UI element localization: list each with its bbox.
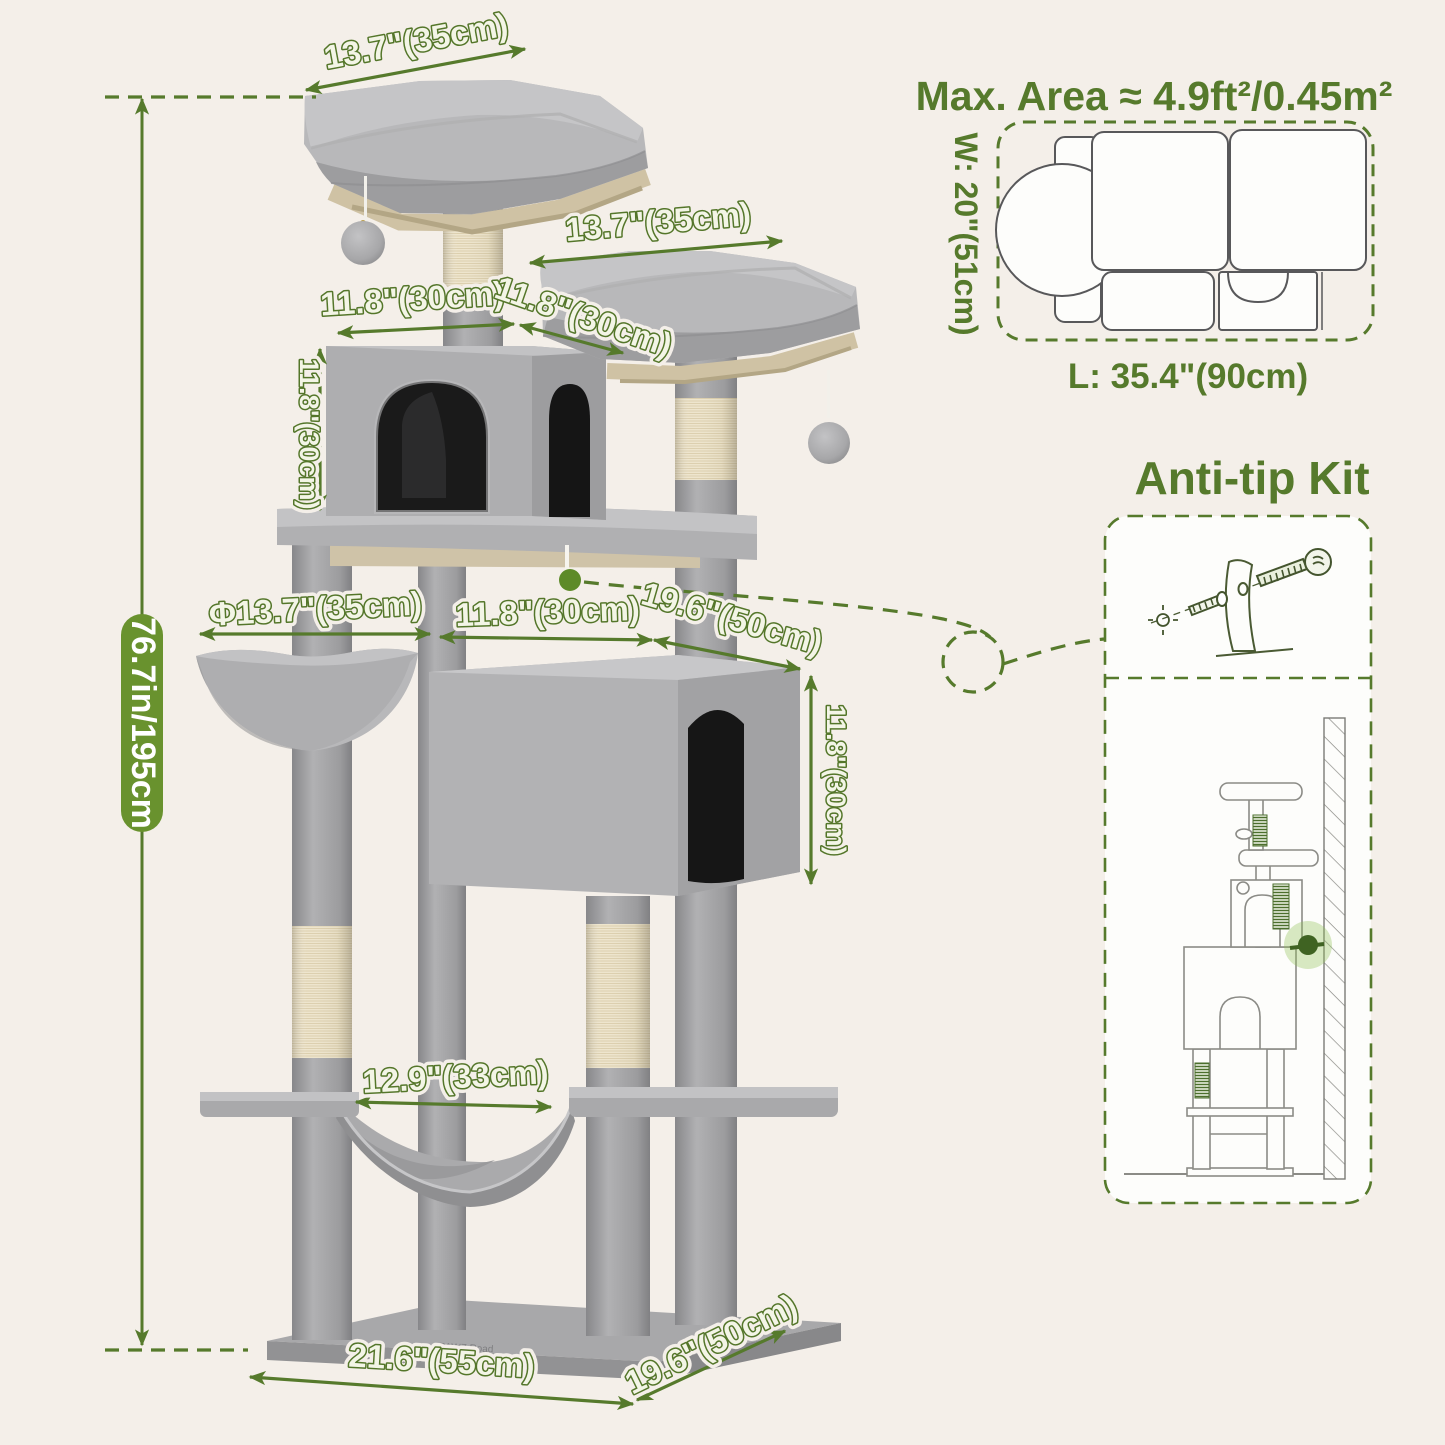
svg-text:W: 20"(51cm): W: 20"(51cm) — [948, 132, 984, 335]
svg-text:11.8"(30cm): 11.8"(30cm) — [294, 359, 324, 510]
svg-text:11.8"(30cm): 11.8"(30cm) — [455, 590, 641, 633]
svg-text:Max. Area ≈ 4.9ft²/0.45m²: Max. Area ≈ 4.9ft²/0.45m² — [916, 73, 1393, 119]
svg-text:Anti-tip Kit: Anti-tip Kit — [1134, 452, 1369, 504]
svg-text:L: 35.4"(90cm): L: 35.4"(90cm) — [1068, 357, 1308, 396]
svg-text:11.8"(30cm): 11.8"(30cm) — [821, 705, 851, 856]
svg-text:76.7in/195cm: 76.7in/195cm — [124, 617, 162, 829]
